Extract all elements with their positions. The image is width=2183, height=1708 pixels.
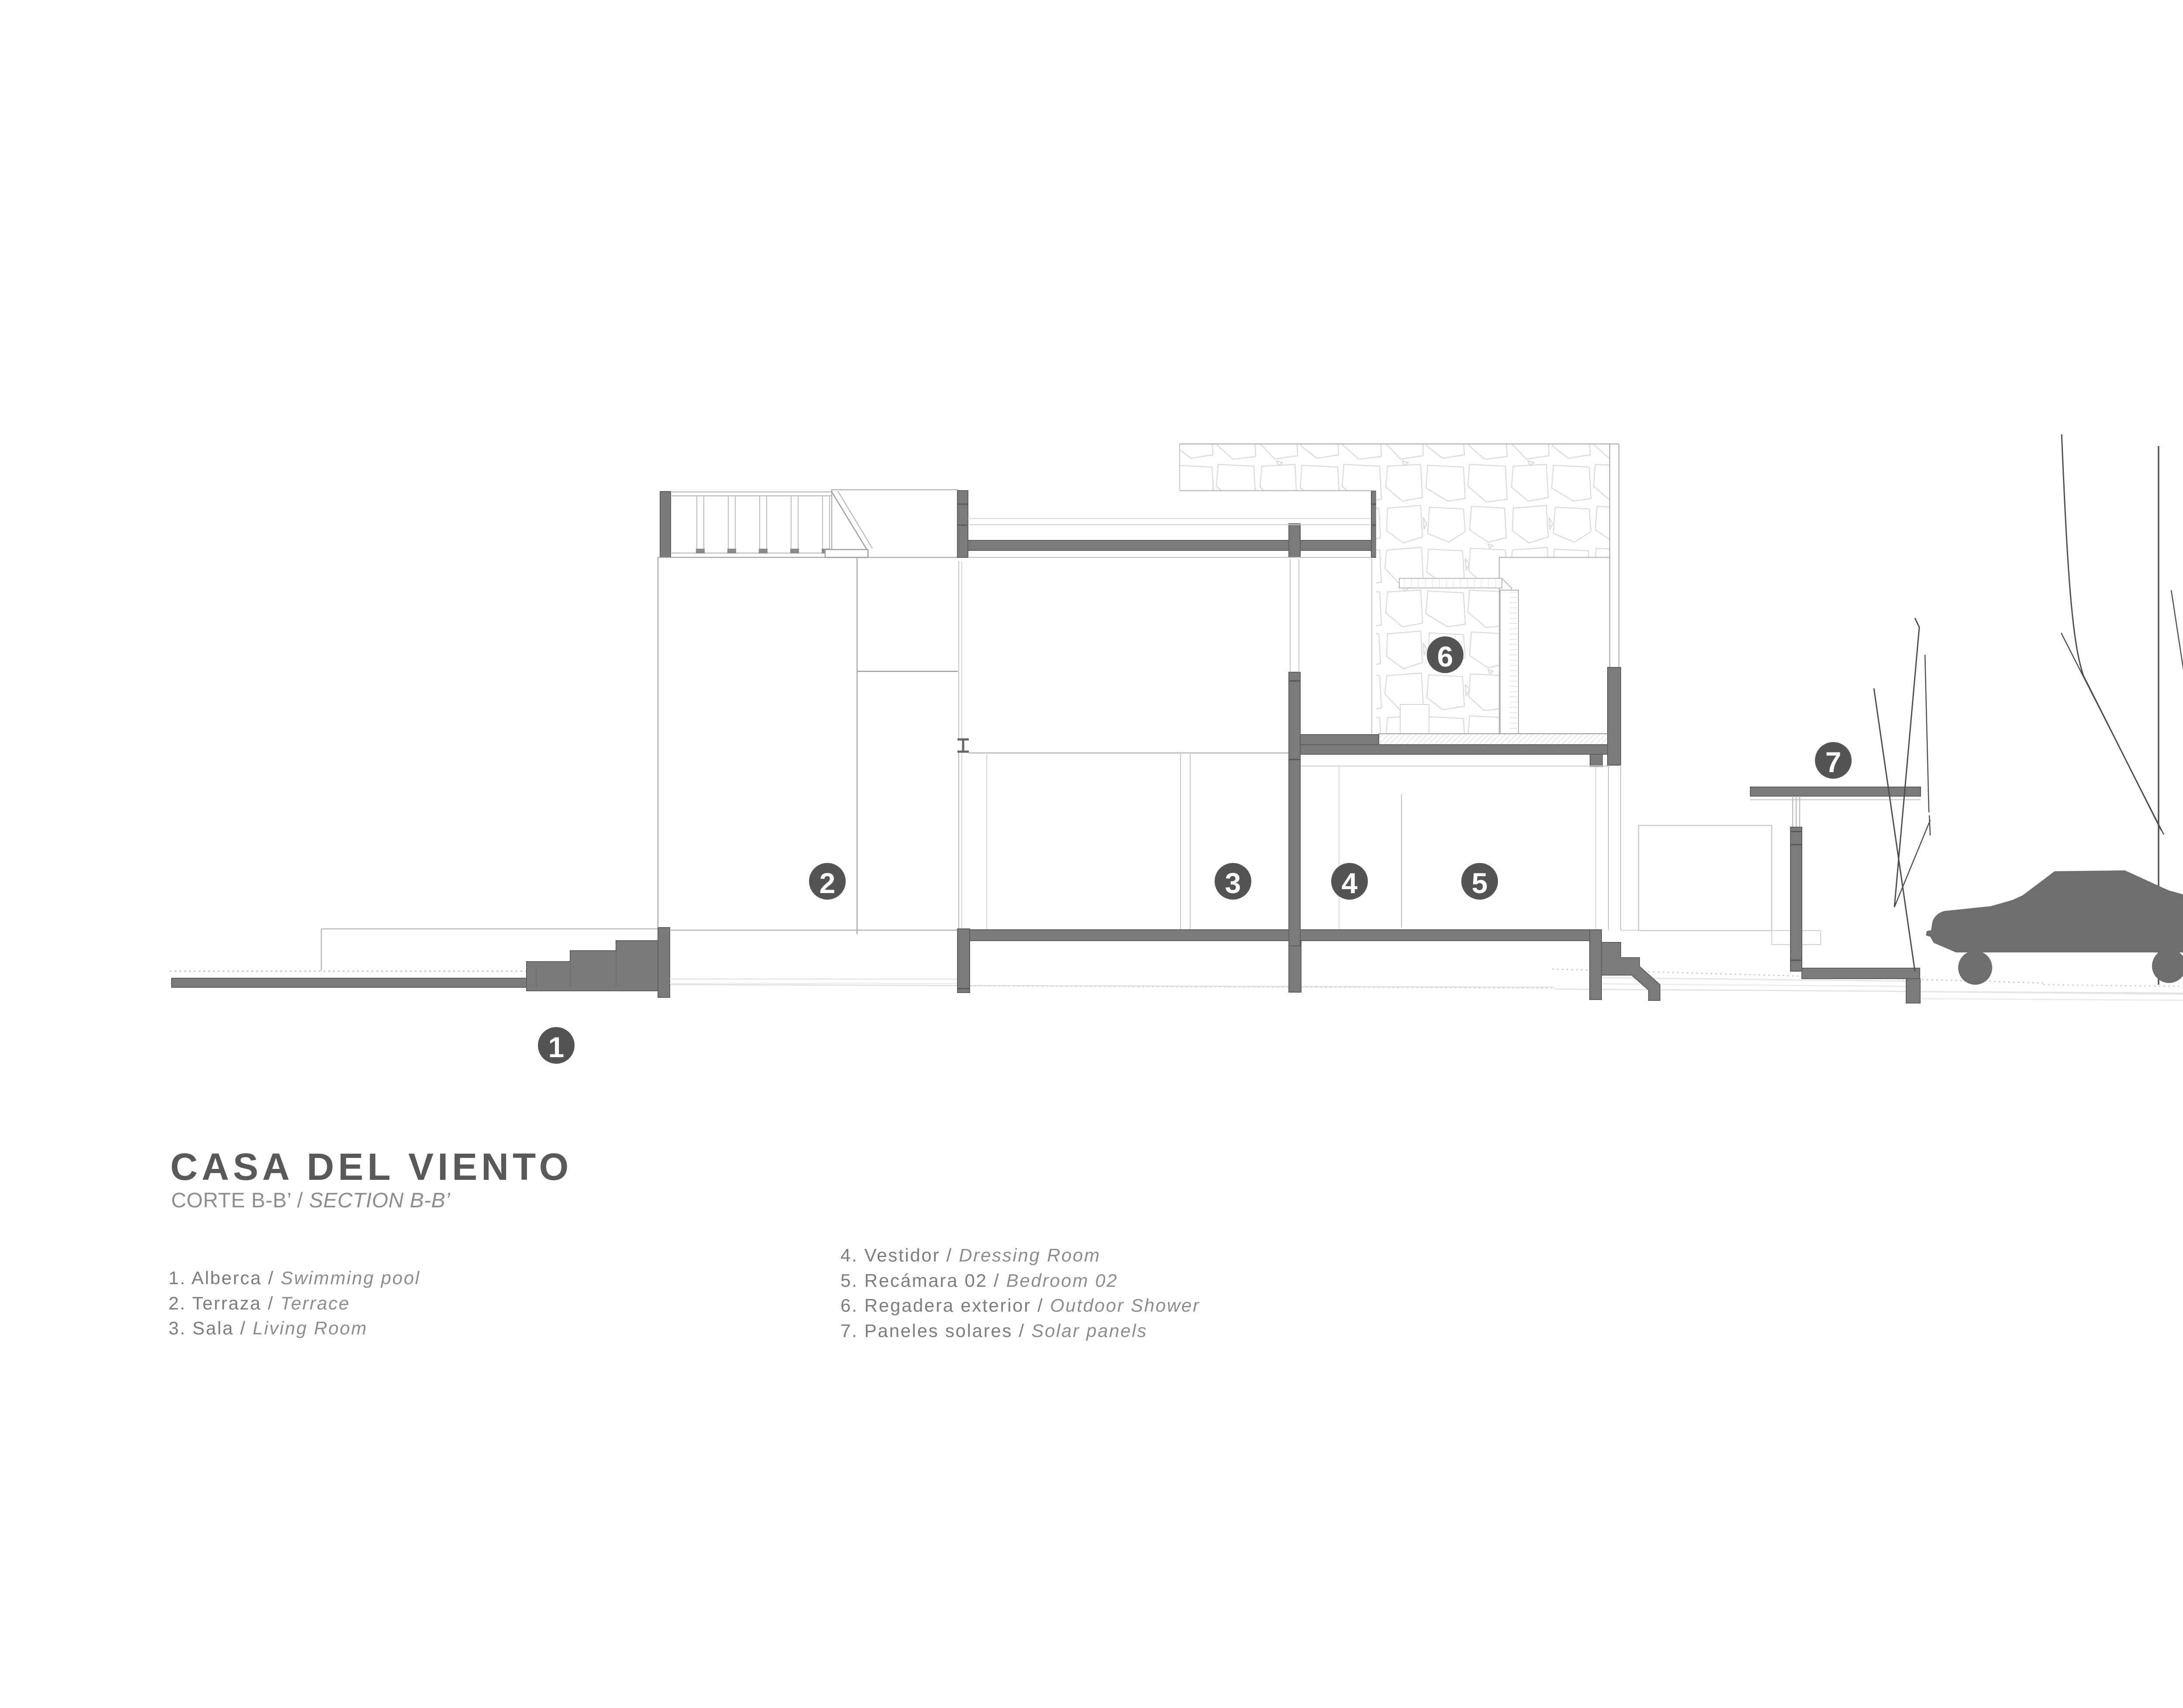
svg-text:CORTE B-B’ / SECTION B-B’: CORTE B-B’ / SECTION B-B’ (171, 1189, 451, 1212)
svg-text:1. Alberca / Swimming pool: 1. Alberca / Swimming pool (169, 1268, 420, 1288)
svg-text:4: 4 (1342, 867, 1358, 899)
svg-text:3. Sala / Living Room: 3. Sala / Living Room (169, 1318, 368, 1338)
svg-text:6. Regadera exterior / Outdoor: 6. Regadera exterior / Outdoor Shower (840, 1295, 1200, 1316)
svg-text:3: 3 (1225, 867, 1241, 899)
svg-text:2: 2 (819, 867, 836, 899)
svg-text:7. Paneles solares / Solar pan: 7. Paneles solares / Solar panels (840, 1320, 1147, 1341)
svg-text:7: 7 (1825, 746, 1842, 778)
svg-text:4. Vestidor / Dressing Room: 4. Vestidor / Dressing Room (840, 1245, 1101, 1265)
svg-text:CASA DEL VIENTO: CASA DEL VIENTO (170, 1146, 572, 1188)
svg-text:6: 6 (1437, 640, 1453, 673)
svg-text:2. Terraza / Terrace: 2. Terraza / Terrace (169, 1293, 350, 1313)
svg-text:1: 1 (548, 1031, 565, 1063)
svg-text:5: 5 (1472, 867, 1488, 899)
svg-text:5. Recámara 02 / Bedroom 02: 5. Recámara 02 / Bedroom 02 (840, 1270, 1118, 1291)
